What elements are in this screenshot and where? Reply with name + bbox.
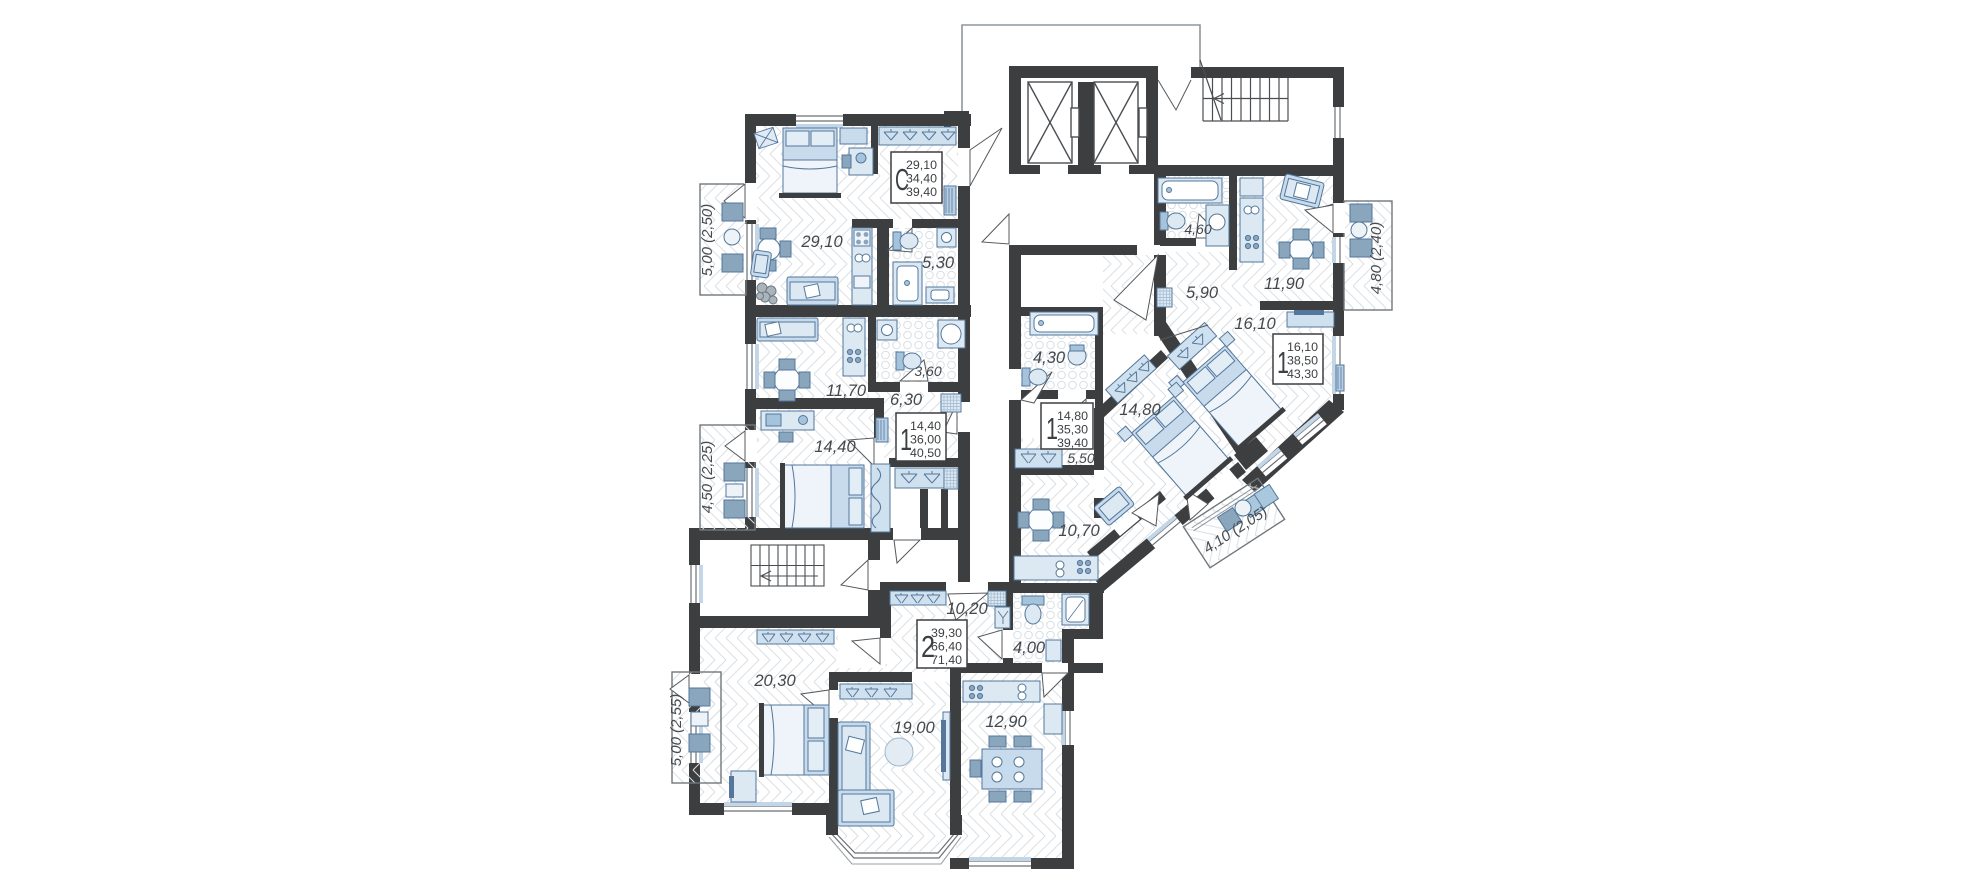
svg-text:3,60: 3,60 [914,363,941,379]
svg-text:4,00: 4,00 [1013,639,1046,657]
svg-text:29,10: 29,10 [906,158,937,172]
svg-text:43,30: 43,30 [1287,367,1318,381]
svg-text:16,10: 16,10 [1234,315,1276,333]
svg-text:6,30: 6,30 [890,391,923,409]
svg-text:4,50 (2,25): 4,50 (2,25) [699,441,716,514]
svg-text:5,30: 5,30 [922,254,955,272]
svg-text:71,40: 71,40 [931,653,962,667]
svg-text:38,50: 38,50 [1287,354,1318,368]
svg-text:40,50: 40,50 [910,446,941,460]
svg-text:11,70: 11,70 [826,382,867,400]
svg-text:11,90: 11,90 [1264,275,1305,293]
svg-text:36,00: 36,00 [910,433,941,447]
svg-text:16,10: 16,10 [1287,340,1318,354]
svg-text:35,30: 35,30 [1057,423,1088,437]
svg-text:39,40: 39,40 [1057,436,1088,450]
svg-text:5,50: 5,50 [1067,450,1094,466]
svg-text:10,20: 10,20 [946,600,988,618]
svg-text:19,00: 19,00 [893,719,935,737]
svg-text:20,30: 20,30 [753,672,796,690]
svg-text:14,40: 14,40 [814,438,856,456]
svg-text:39,30: 39,30 [931,626,962,640]
svg-text:12,90: 12,90 [985,713,1027,731]
svg-text:34,40: 34,40 [906,172,937,186]
svg-text:4,80 (2,40): 4,80 (2,40) [1368,222,1385,295]
svg-text:4,60: 4,60 [1184,221,1211,237]
svg-text:14,80: 14,80 [1057,409,1088,423]
svg-text:39,40: 39,40 [906,185,937,199]
svg-text:4,30: 4,30 [1033,349,1066,367]
svg-text:5,00 (2,50): 5,00 (2,50) [699,204,716,277]
svg-text:5,00 (2,55): 5,00 (2,55) [668,694,685,767]
svg-text:5,90: 5,90 [1186,284,1219,302]
svg-text:14,40: 14,40 [910,419,941,433]
svg-text:66,40: 66,40 [931,640,962,654]
svg-text:29,10: 29,10 [800,233,843,251]
svg-text:10,70: 10,70 [1058,522,1100,540]
svg-text:14,80: 14,80 [1119,401,1161,419]
